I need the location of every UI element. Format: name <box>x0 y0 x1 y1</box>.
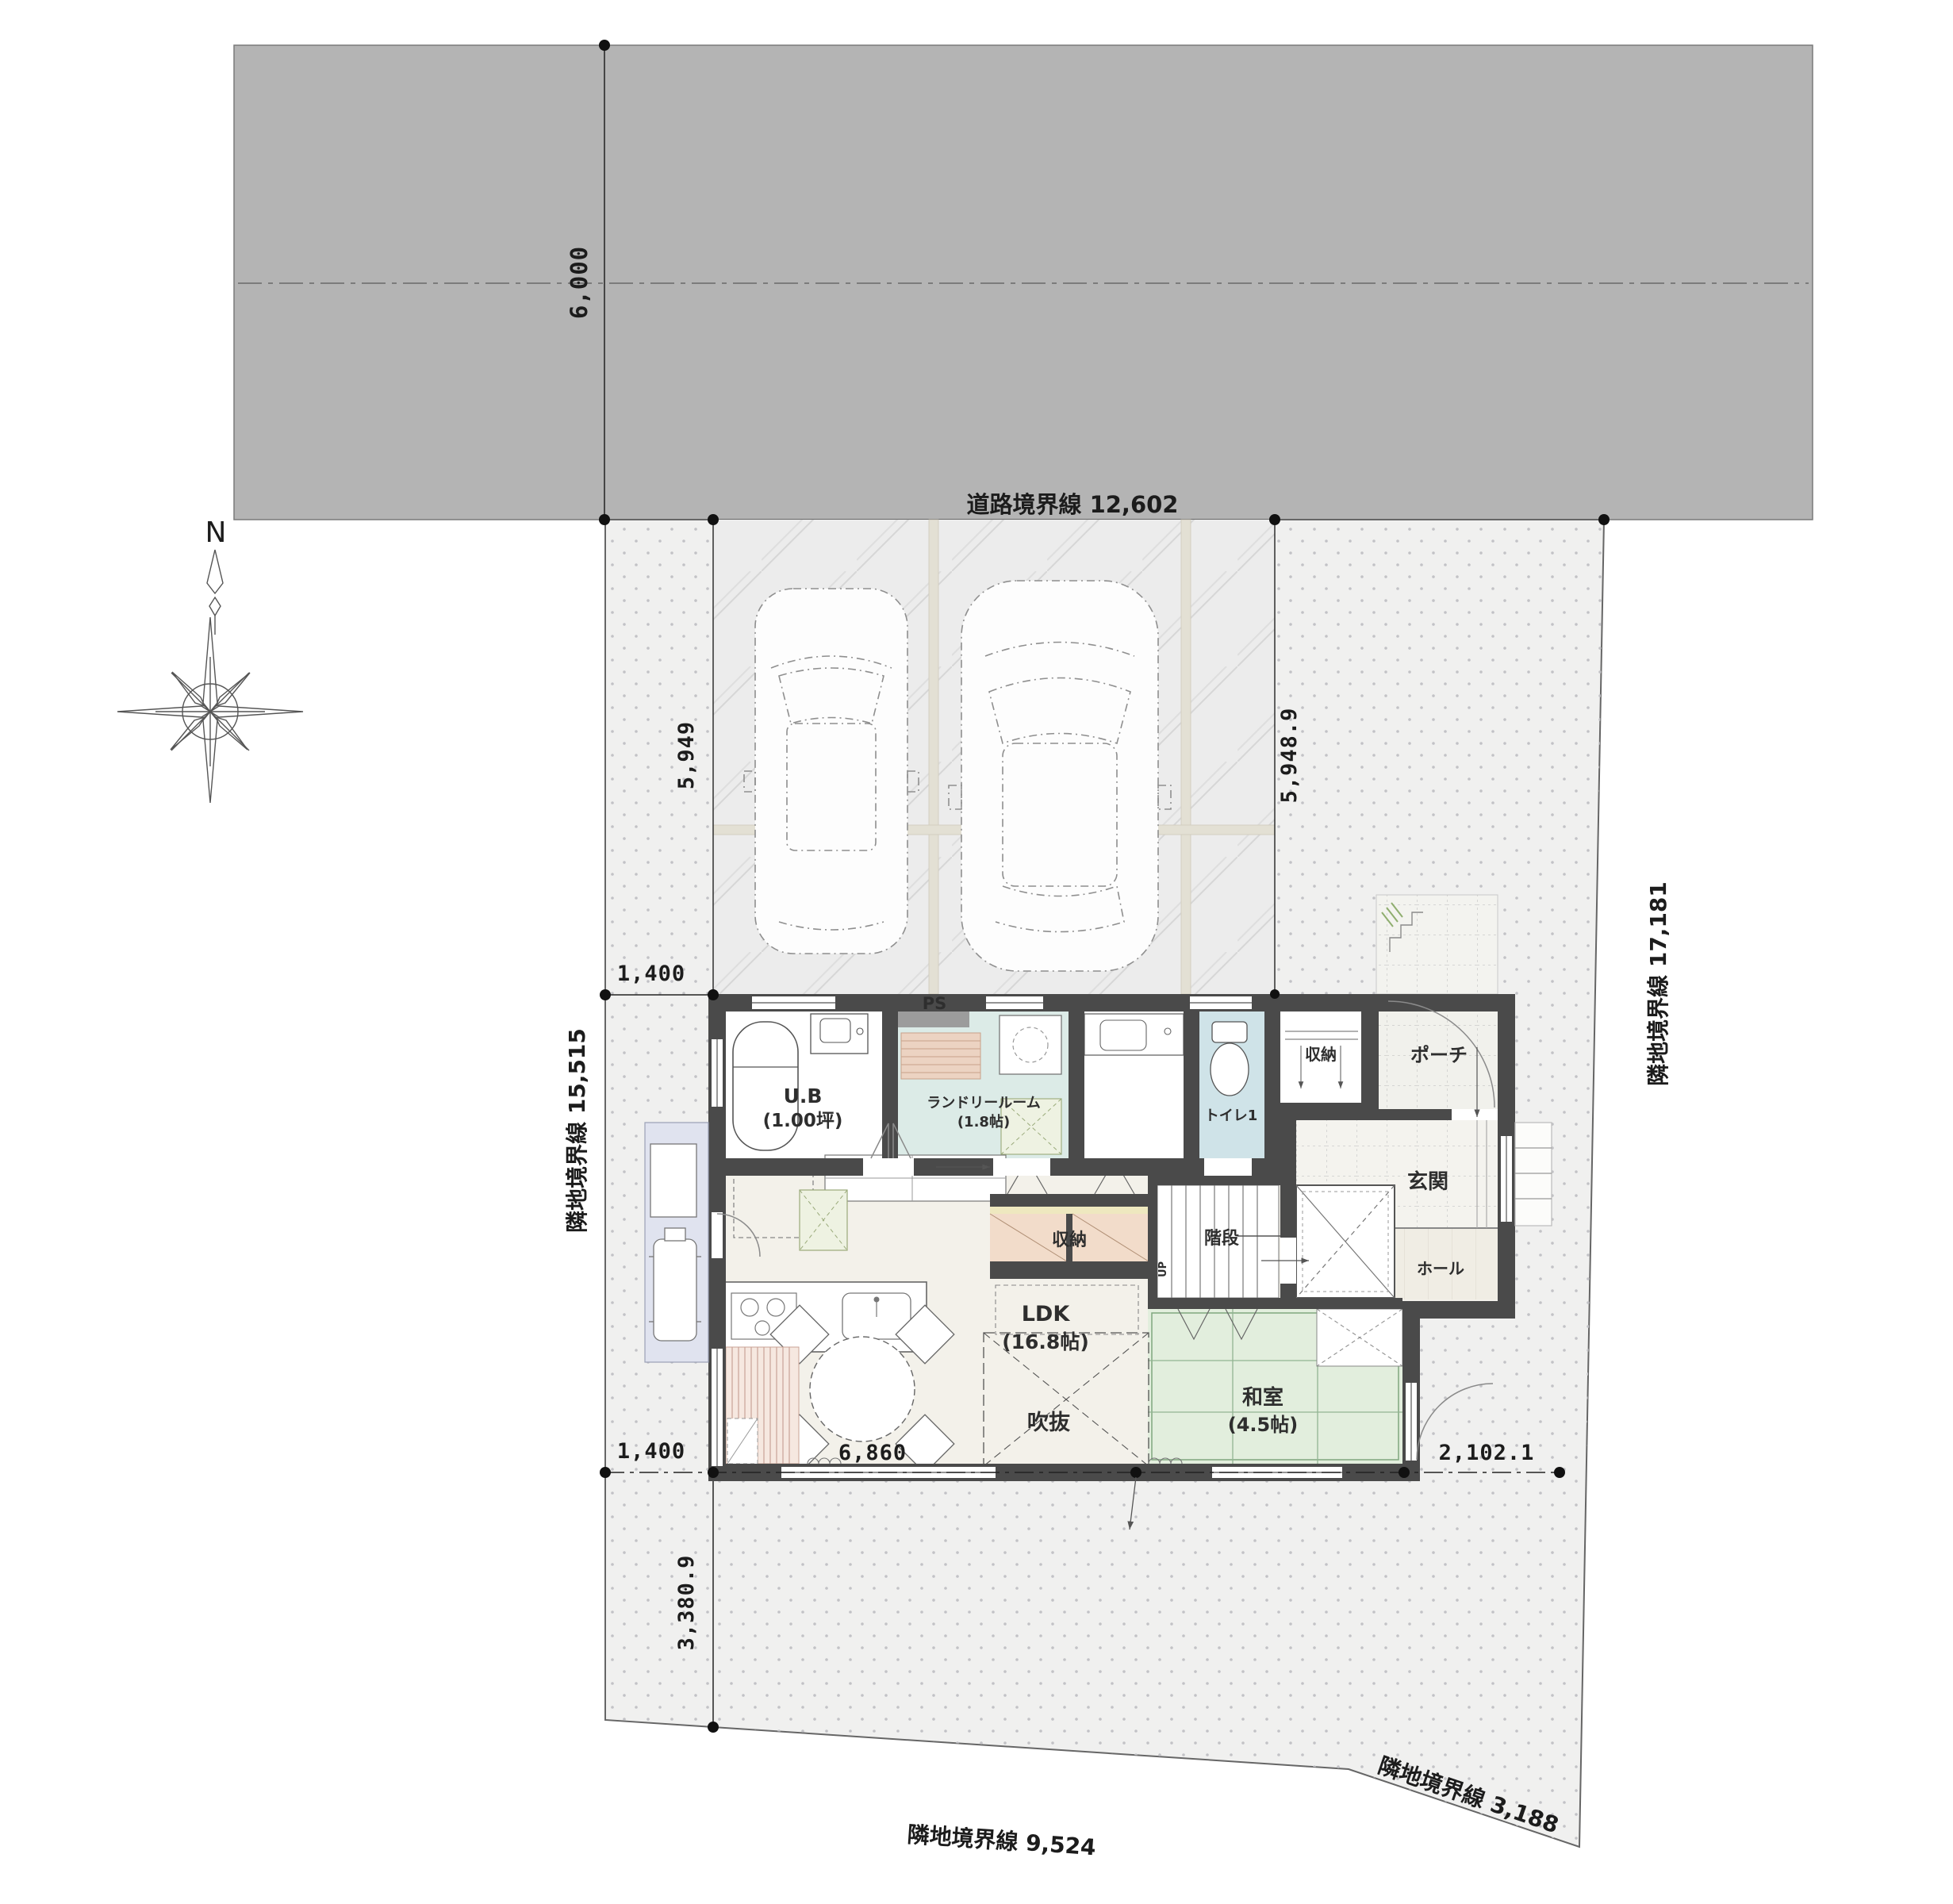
site-floor-plan: 6,000 道路境界線 12,602 隣地境界線 15,515 隣地境界線 17… <box>0 0 1953 1904</box>
terrace-window <box>650 1144 696 1217</box>
toilet-fixtures <box>1211 1022 1249 1096</box>
toilet-bowl <box>1211 1043 1249 1096</box>
car-1 <box>744 589 919 954</box>
road-surface <box>234 45 1813 520</box>
outside-steps <box>1515 1123 1552 1226</box>
entry-closet-label: 収納 <box>1305 1045 1337 1064</box>
dim-dot <box>599 40 610 51</box>
setback-top-dim: 1,400 <box>617 962 685 986</box>
dining-table <box>810 1337 915 1441</box>
laundry-size: (1.8帖) <box>957 1113 1010 1130</box>
slab-joint <box>1181 520 1191 994</box>
ldk-size: (16.8帖) <box>1002 1330 1089 1353</box>
washitsu-name: 和室 <box>1242 1385 1283 1410</box>
pipe-space <box>898 1011 969 1027</box>
entry-approach <box>1376 895 1498 994</box>
ldk-name: LDK <box>1022 1302 1071 1326</box>
approach-grid <box>1376 895 1498 994</box>
house-width-dim: 6,860 <box>838 1441 907 1465</box>
wood-slat-panel <box>726 1347 799 1464</box>
east-setback-dim: 2,102.1 <box>1439 1441 1535 1465</box>
toilet-label: トイレ1 <box>1205 1107 1258 1124</box>
road: 6,000 道路境界線 12,602 <box>234 40 1813 520</box>
stairs-up-label: UP <box>1157 1261 1169 1277</box>
ps-label: PS <box>923 994 947 1013</box>
laundry-name: ランドリールーム <box>927 1095 1040 1111</box>
boundary-left-label: 隣地境界線 15,515 <box>564 1028 590 1233</box>
setback-bottom-dim: 1,400 <box>617 1439 685 1464</box>
compass-north-label: N <box>205 516 227 549</box>
boundary-bottom-label: 隣地境界線 9,524 <box>907 1821 1097 1861</box>
south-setback-dim: 3,380.9 <box>674 1555 699 1651</box>
parking-depth-left-dim: 5,949 <box>674 721 699 789</box>
ub-name: U.B <box>784 1084 823 1107</box>
plan-drawing: 6,000 道路境界線 12,602 隣地境界線 15,515 隣地境界線 17… <box>0 0 1953 1904</box>
car-2 <box>949 581 1171 971</box>
washroom-fixtures <box>1084 1014 1184 1055</box>
understair-closet <box>1296 1185 1395 1298</box>
genkan-label: 玄関 <box>1407 1169 1448 1194</box>
ub-size: (1.00坪) <box>763 1111 843 1131</box>
toilet-tank <box>1212 1022 1247 1042</box>
kitchen-island <box>723 1282 927 1352</box>
compass: N <box>117 516 303 803</box>
road-boundary-label: 道路境界線 12,602 <box>966 491 1178 518</box>
parking-depth-right-dim: 5,948.9 <box>1277 708 1302 804</box>
water-heater <box>649 1228 701 1341</box>
slab-joint <box>929 520 938 994</box>
wash-basin <box>1100 1020 1146 1050</box>
parking-area: 5,949 5,948.9 <box>674 520 1302 994</box>
void-label: 吹抜 <box>1027 1411 1071 1435</box>
ldk-storage-label: 収納 <box>1052 1230 1087 1250</box>
service-terrace <box>645 1123 708 1362</box>
hall-label: ホール <box>1417 1259 1464 1278</box>
compass-needle <box>207 550 223 593</box>
boundary-right-label: 隣地境界線 17,181 <box>1645 881 1671 1086</box>
house: UP <box>708 994 1515 1481</box>
washitsu-size: (4.5帖) <box>1228 1414 1298 1436</box>
road-width-dim: 6,000 <box>566 246 593 319</box>
washing-machine <box>1000 1015 1061 1074</box>
porch-label: ポーチ <box>1410 1044 1468 1066</box>
stairs-label: 階段 <box>1204 1228 1239 1249</box>
